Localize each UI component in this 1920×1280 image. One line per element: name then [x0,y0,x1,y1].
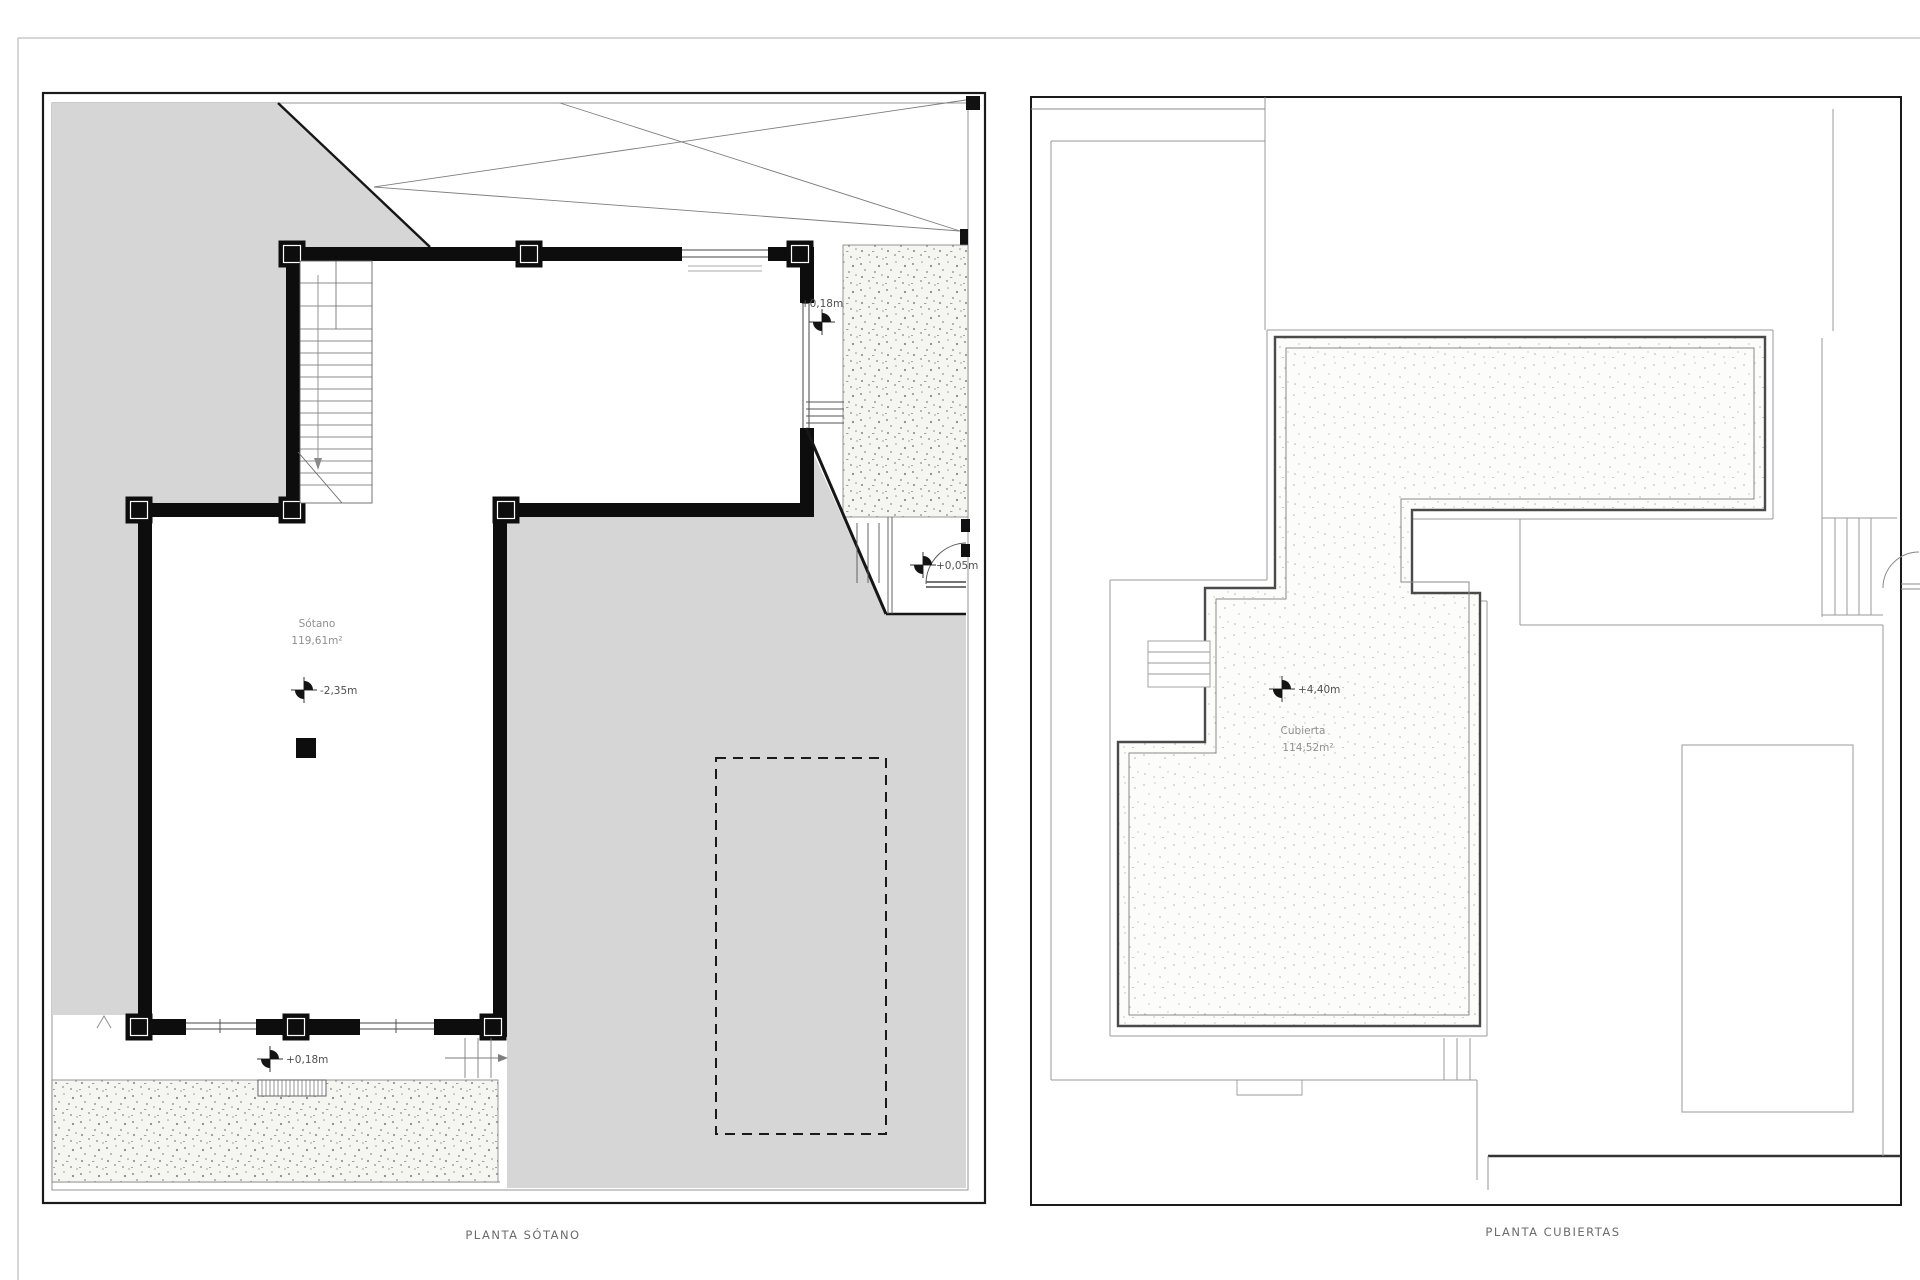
basement-caption: PLANTA SÓTANO [465,1227,580,1242]
floor-plan-drawing: Sótano 119,61m² +0,18m -2,35m +0,18m +0,… [0,0,1920,1280]
level-roof: +4,40m [1298,684,1340,696]
stair-right [1822,518,1897,615]
roof-slab [1118,337,1765,1026]
basement-ground-right [507,448,966,1188]
basement-ground-left [52,103,430,1015]
roof-room-area: 114,52m² [1282,742,1333,754]
roof-plan: +4,40m Cubierta 114,52m² PLANTA CUBIERTA… [1031,97,1920,1239]
stair-main [298,261,372,503]
level-entry: +0,05m [936,560,978,572]
basement-plan: Sótano 119,61m² +0,18m -2,35m +0,18m +0,… [43,93,985,1242]
roof-room-label: Cubierta [1281,725,1326,737]
level-terrace-bottom: +0,18m [286,1054,328,1066]
free-pillar [296,738,316,758]
level-floor: -2,35m [320,685,357,697]
stair-roof-left [1148,641,1210,687]
terrace-pool-outline [1682,745,1853,1112]
roof-caption: PLANTA CUBIERTAS [1485,1225,1620,1239]
stair-small-bottom [445,1038,508,1078]
drawing-sheet: Sótano 119,61m² +0,18m -2,35m +0,18m +0,… [0,0,1920,1280]
basement-room-label: Sótano [299,618,336,630]
level-marker-floor [291,677,317,703]
basement-room-area: 119,61m² [291,635,342,647]
drain-grate [258,1080,326,1096]
bottom-steps [1237,1038,1470,1095]
boundary-corner-post [966,96,980,110]
gravel-terrace-right [843,245,968,517]
level-terrace-right: +0,18m [801,298,843,310]
terrace-arrow-mark [97,1016,111,1028]
boundary-post [960,229,968,247]
level-marker-terrace-bottom [257,1046,283,1072]
level-marker-entry [910,552,936,578]
sight-lines [374,100,966,231]
